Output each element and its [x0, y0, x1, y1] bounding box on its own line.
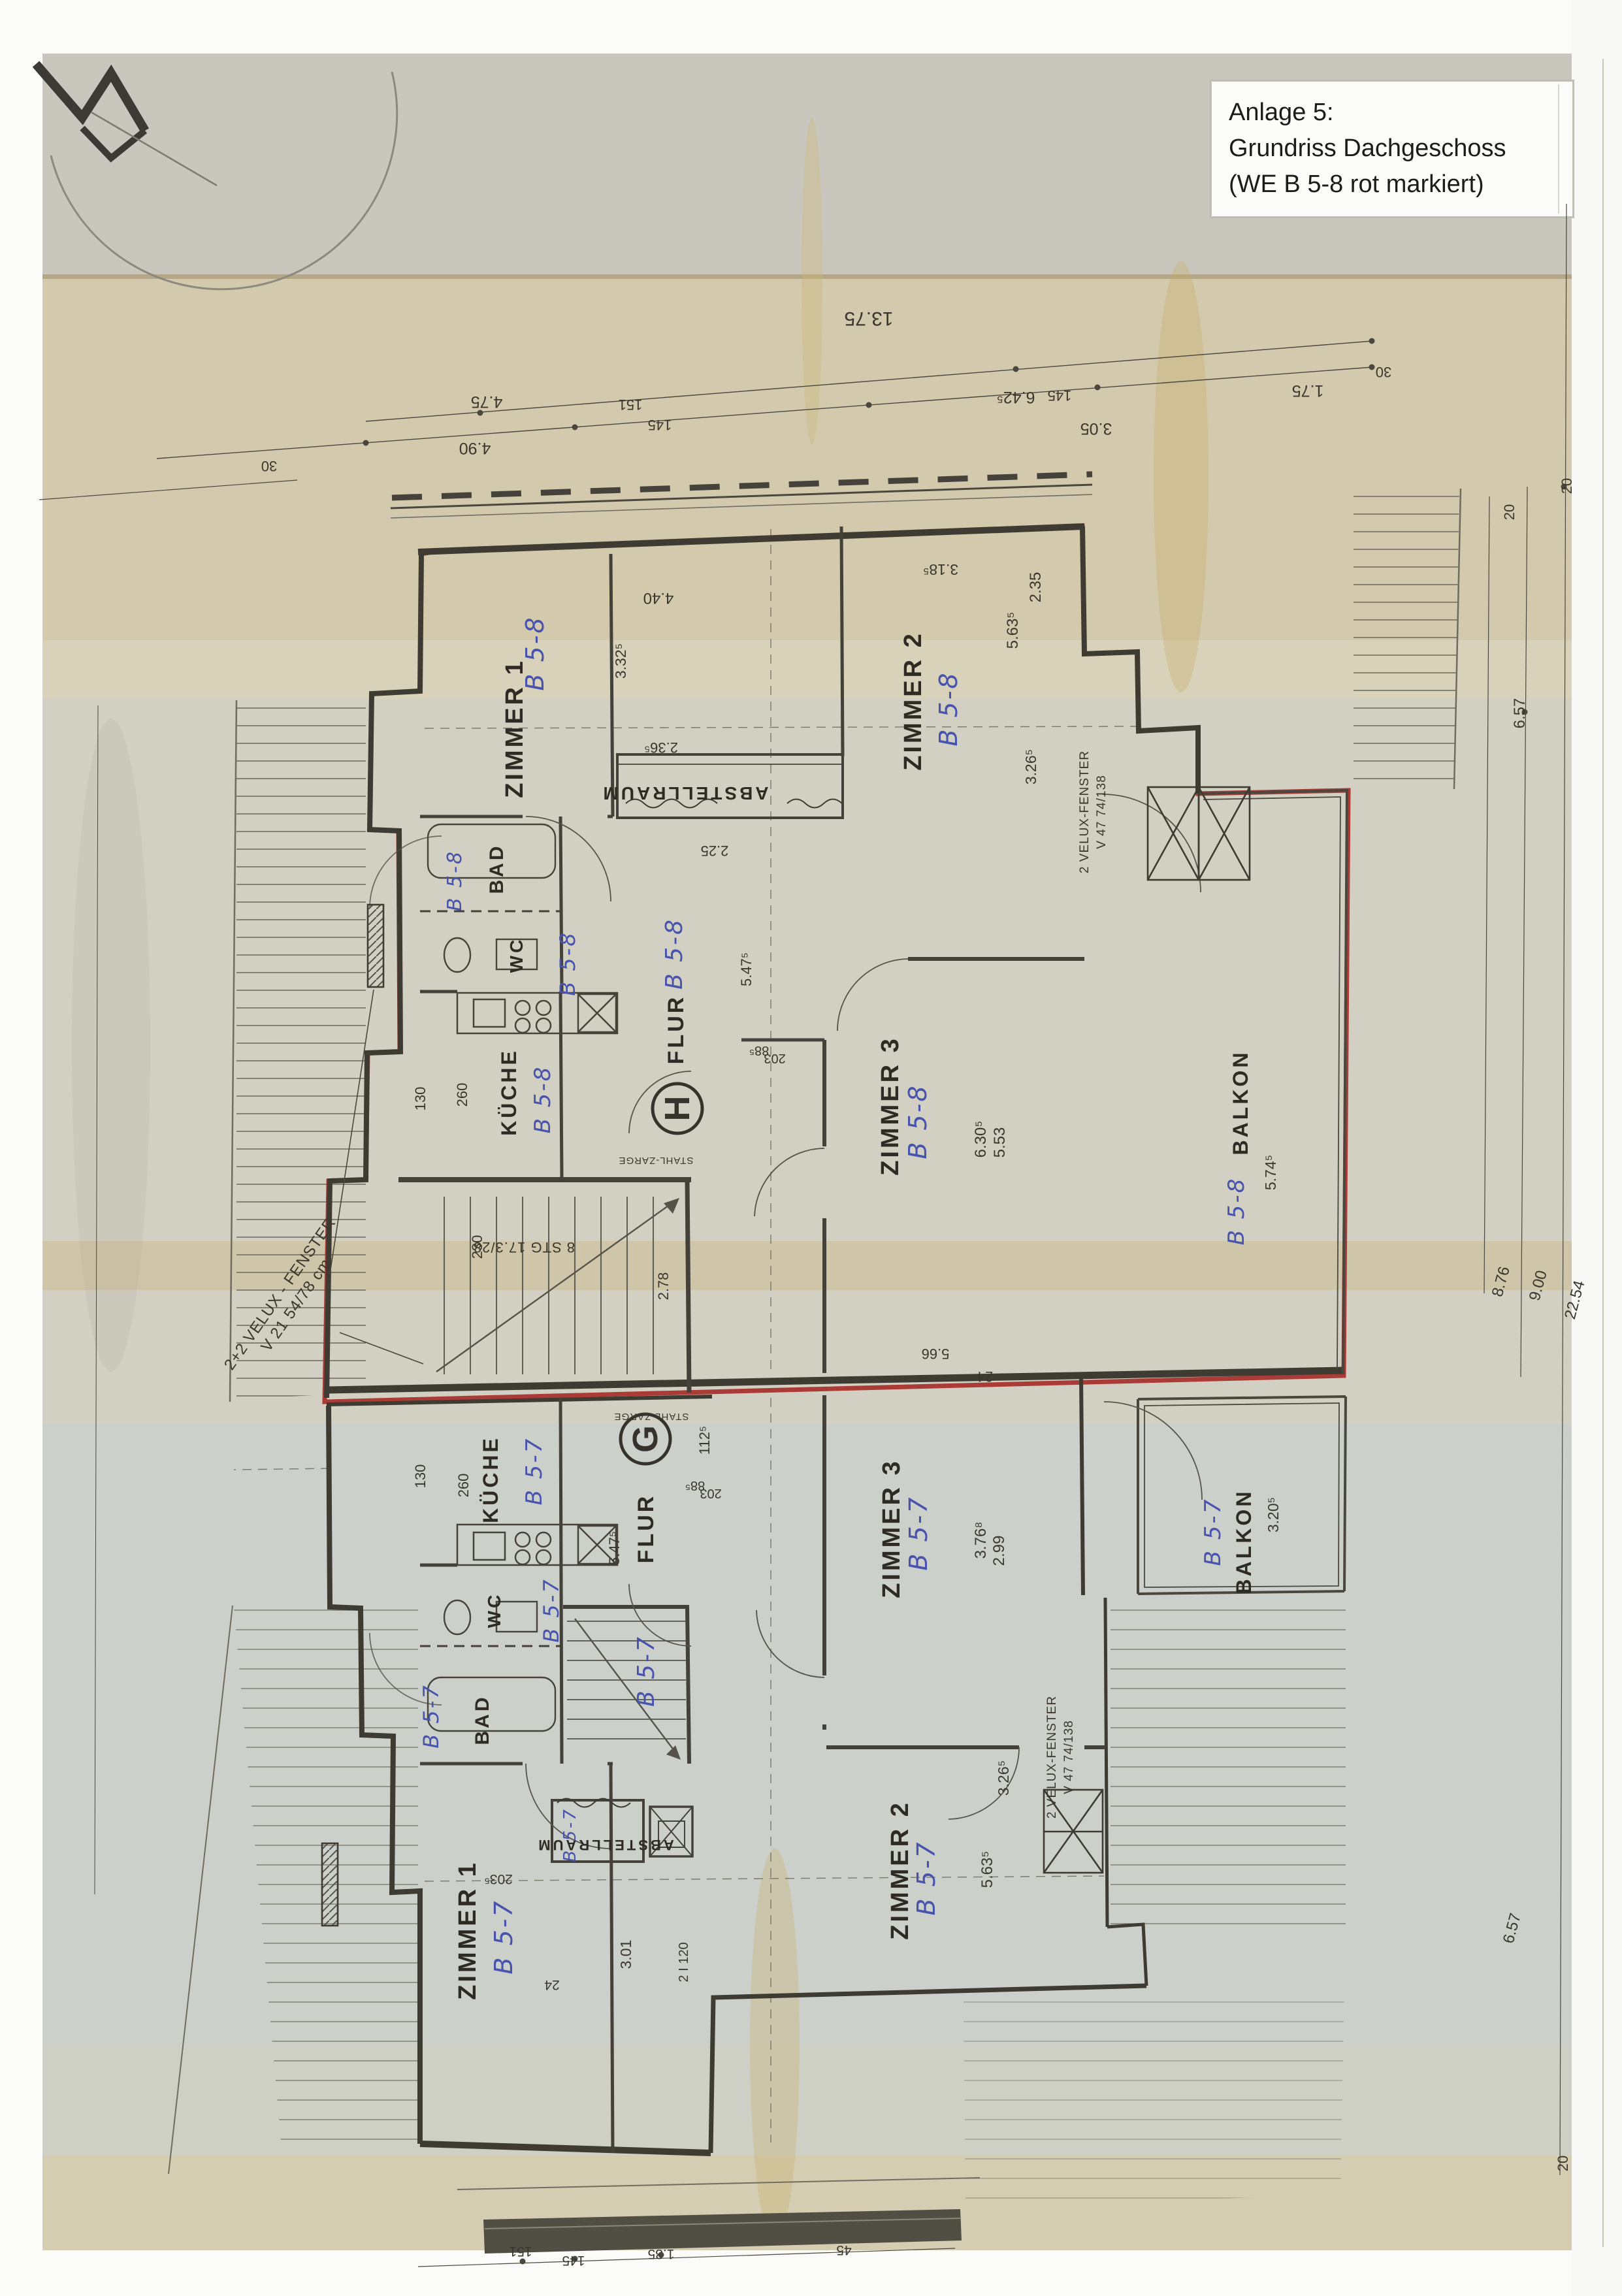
dim-label: 4.40 [643, 589, 674, 607]
dim-label: 24 [544, 1977, 560, 1992]
room-label-bad-lower: BAD [472, 1695, 493, 1745]
dim-label: 5.74⁵ [1262, 1155, 1279, 1190]
room-label-abstellraum-lower: ABSTELLRAUM [536, 1837, 673, 1853]
scanned-floorplan-page: Anlage 5: Grundriss Dachgeschoss (WE B 5… [0, 0, 1622, 2296]
unit-code: B 5-8 [1224, 1177, 1250, 1246]
room-label-kueche-upper: KÜCHE [497, 1048, 521, 1136]
unit-code: B 5-8 [555, 931, 580, 995]
stairwell-letter-lower: G [626, 1425, 665, 1453]
dim-label: 4.75 [471, 393, 503, 411]
dim-label: 1.35 [648, 2246, 675, 2261]
dim-label: 130 [412, 1087, 429, 1111]
room-label-wc-lower: WC [484, 1593, 504, 1628]
dim-label: 260 [454, 1083, 470, 1107]
unit-code: B 5-7 [489, 1899, 518, 1974]
velux-note-upper-2: V 47 74/138 [1095, 775, 1109, 849]
steel-frame-note-lower: STAHL-ZARGE [614, 1411, 689, 1422]
dim-label: 203⁵ [484, 1871, 513, 1886]
labels-upper-unit: ZIMMER 1 B 5-8 ZIMMER 2 B 5-8 ZIMMER 3 B… [444, 615, 1252, 1245]
dim-label: 3.32⁵ [612, 643, 629, 679]
dim-label: 3.26⁵ [995, 1760, 1012, 1796]
room-label-balkon-upper: BALKON [1229, 1050, 1252, 1156]
floorplan-drawing: ZIMMER 1 B 5-8 ZIMMER 2 B 5-8 ZIMMER 3 B… [0, 0, 1622, 2296]
room-label-zimmer2-upper: ZIMMER 2 [900, 631, 927, 771]
dim-label: 112⁵ [696, 1426, 713, 1455]
dim-label: 22.54 [1561, 1279, 1589, 1321]
kitchen-upper [457, 993, 617, 1033]
unit-code: B 5-7 [904, 1495, 933, 1570]
dim-label: 24 [977, 1368, 993, 1385]
dim-label: 5.63⁵ [979, 1851, 996, 1888]
dim-label: 5.63⁵ [1004, 612, 1022, 649]
dim-label: 151 [509, 2244, 532, 2259]
stair-note-upper: 8 STG 17.3/28 [473, 1239, 575, 1255]
unit-code: B 5-7 [633, 1635, 660, 1707]
roof-hatch-areas [169, 489, 1461, 2207]
dim-label: 30 [1376, 364, 1391, 380]
dim-label: 30 [261, 458, 277, 474]
room-label-bad-upper: BAD [486, 844, 508, 894]
dim-label: 130 [412, 1464, 429, 1489]
dim-label: 2.99 [990, 1536, 1008, 1566]
unit-code: B 5-8 [903, 1084, 932, 1159]
room-label-flur-upper: FLUR [664, 995, 689, 1065]
stairs-upper [436, 1197, 679, 1374]
velux-note-lower-2: V 47 74/138 [1062, 1720, 1076, 1794]
dim-label: 3.05 [1080, 419, 1112, 438]
dim-label: 151 [619, 396, 643, 413]
room-label-wc-upper: WC [506, 937, 527, 973]
dim-label: 5.47⁵ [738, 952, 754, 986]
dim-label: 20 [1501, 504, 1517, 520]
unit-code: B 5-7 [419, 1683, 444, 1748]
dim-label: 3.76⁸ [972, 1522, 990, 1559]
stairwell-letter-upper: H [658, 1096, 697, 1122]
kitchen-lower [457, 1525, 617, 1565]
room-label-zimmer3-upper: ZIMMER 3 [877, 1036, 904, 1176]
dim-label: 45 [836, 2242, 851, 2257]
dim-label: 6.30⁵ [972, 1121, 990, 1158]
dim-label: 260 [455, 1474, 472, 1498]
dim-label: 4.90 [459, 439, 491, 457]
room-label-balkon-lower: BALKON [1232, 1489, 1256, 1594]
dim-label: 203 [700, 1486, 721, 1500]
velux-note-upper-1: 2 VELUX-FENSTER [1078, 751, 1092, 873]
dim-label: 9.00 [1526, 1269, 1551, 1302]
dim-label: 6.42⁵ [996, 388, 1035, 406]
dim-label: 20 [1555, 2156, 1571, 2171]
dim-label: 145 [648, 417, 672, 433]
dim-label: 13.75 [844, 308, 893, 329]
dim-label: 145 [1048, 387, 1072, 404]
dim-label: 2.25 [701, 843, 729, 859]
unit-code: B 5-7 [560, 1807, 580, 1862]
unit-code: B 5-8 [530, 1065, 556, 1134]
dim-label: 3.20⁵ [1265, 1497, 1282, 1532]
dim-label: 3.26⁵ [1022, 749, 1039, 784]
corner-marks [36, 64, 397, 289]
room-label-zimmer1-lower: ZIMMER 1 [454, 1860, 481, 2000]
dim-label: 5.66 [922, 1346, 950, 1362]
room-label-kueche-lower: KÜCHE [479, 1436, 502, 1523]
dim-label: 3.18⁵ [923, 561, 958, 578]
unit-code: B 5-8 [661, 918, 688, 990]
room-label-abstellraum-upper: ABSTELLRAUM [600, 783, 768, 803]
dim-label: 6.57 [1500, 1911, 1525, 1945]
insulation-waves [557, 800, 842, 1807]
unit-code: B 5-7 [539, 1577, 564, 1642]
dim-label: 2.78 [655, 1272, 672, 1301]
stairs-lower [567, 1619, 686, 1760]
velux-note-lower-1: 2 VELUX-FENSTER [1045, 1696, 1059, 1819]
unit-code: B 5-8 [521, 615, 549, 690]
dim-label: 230 [469, 1235, 485, 1259]
unit-code: B 5-7 [912, 1840, 941, 1915]
steel-frame-note-upper: STAHL-ZARGE [619, 1155, 694, 1166]
dim-label: 5.47⁵ [606, 1531, 623, 1565]
dim-label: 6.57 [1511, 698, 1529, 729]
unit-code: B 5-8 [934, 671, 963, 746]
room-label-zimmer2-lower: ZIMMER 2 [886, 1800, 914, 1940]
dim-label: 2.35 [1027, 572, 1045, 603]
room-label-flur-lower: FLUR [634, 1494, 658, 1564]
unit-code: B 5-7 [521, 1437, 547, 1506]
dim-label: 2.36⁵ [644, 739, 678, 756]
dim-label: 5.53 [991, 1127, 1009, 1158]
unit-code: B 5-8 [444, 850, 466, 911]
dim-label: 3.01 [617, 1940, 634, 1969]
dim-label: 2 I 120 [677, 1942, 691, 1982]
dim-label: 8.76 [1489, 1265, 1514, 1299]
dim-label: 203 [764, 1051, 785, 1065]
dim-label: 1.75 [1292, 381, 1324, 400]
room-label-zimmer3-lower: ZIMMER 3 [878, 1459, 905, 1598]
door-arcs [370, 794, 1202, 1849]
dim-label: 20 [1559, 478, 1575, 494]
unit-code: B 5-7 [1200, 1498, 1226, 1566]
dim-label: 145 [562, 2253, 585, 2268]
